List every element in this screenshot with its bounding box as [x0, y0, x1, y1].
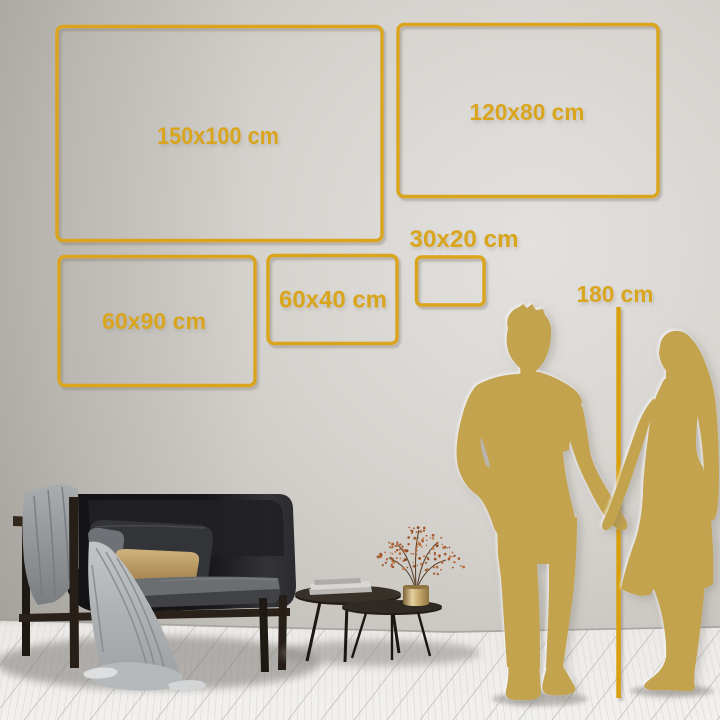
svg-text:180 cm: 180 cm [577, 281, 654, 307]
svg-text:60x90 cm: 60x90 cm [102, 308, 206, 334]
svg-text:150x100 cm: 150x100 cm [157, 123, 279, 150]
svg-text:60x40 cm: 60x40 cm [279, 287, 387, 314]
svg-text:30x20 cm: 30x20 cm [410, 226, 519, 253]
svg-text:120x80 cm: 120x80 cm [470, 99, 585, 125]
